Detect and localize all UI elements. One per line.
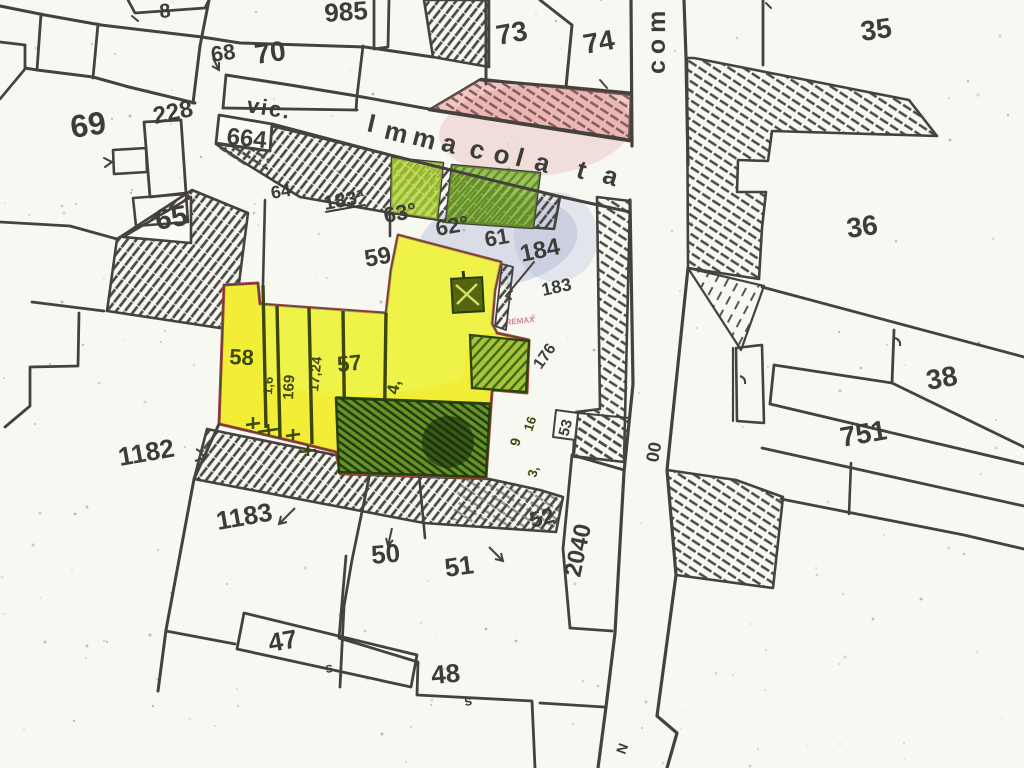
- svg-text:8: 8: [159, 0, 172, 23]
- svg-text:985: 985: [323, 0, 368, 28]
- svg-text:com: com: [643, 5, 671, 74]
- svg-text:169: 169: [280, 374, 298, 400]
- svg-text:38: 38: [924, 360, 960, 396]
- svg-text:36: 36: [845, 209, 880, 244]
- svg-text:50: 50: [370, 538, 401, 570]
- svg-text:®: ®: [531, 314, 536, 321]
- svg-text:59: 59: [362, 242, 393, 273]
- svg-text:65: 65: [153, 200, 190, 237]
- svg-text:61: 61: [483, 223, 511, 252]
- svg-text:664: 664: [225, 123, 268, 154]
- svg-text:64: 64: [269, 180, 292, 203]
- svg-text:74: 74: [581, 24, 617, 60]
- svg-text:47: 47: [266, 623, 300, 658]
- svg-text:73: 73: [494, 15, 530, 51]
- svg-text:35: 35: [859, 12, 894, 47]
- svg-text:69: 69: [68, 104, 108, 145]
- svg-text:58: 58: [229, 344, 255, 370]
- svg-text:00: 00: [642, 440, 665, 463]
- svg-text:48: 48: [430, 658, 461, 690]
- svg-text:57: 57: [336, 350, 363, 377]
- svg-text:70: 70: [253, 35, 288, 70]
- svg-text:51: 51: [443, 549, 476, 583]
- svg-text:68: 68: [209, 39, 237, 67]
- svg-text:1,6: 1,6: [260, 376, 276, 395]
